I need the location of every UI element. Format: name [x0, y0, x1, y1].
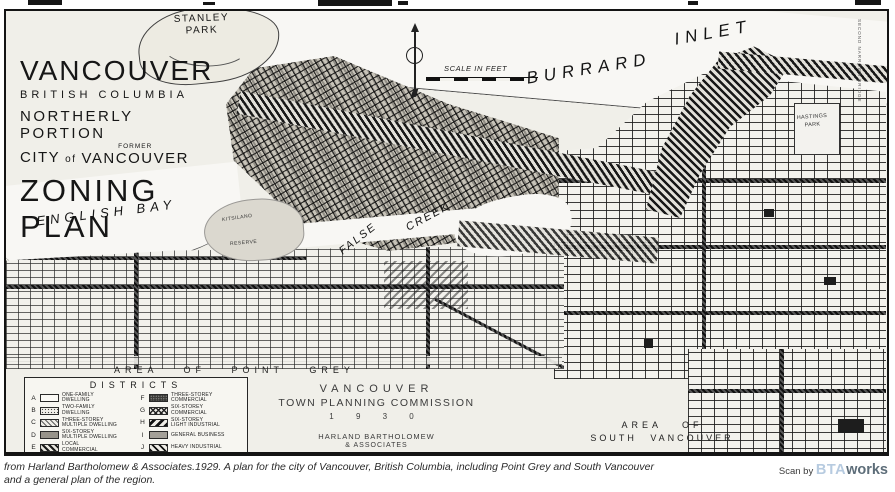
arterial-commercial-strip	[688, 389, 886, 393]
scan-credit: Scan by BTAworks	[779, 462, 888, 478]
legend-row-j: J HEAVY INDUSTRIAL	[139, 442, 242, 454]
legend-label: COMMERCIAL	[171, 398, 212, 403]
legend-key: G	[139, 407, 146, 414]
legend-key: D	[30, 432, 37, 439]
legend-key: H	[139, 419, 146, 426]
arterial-commercial-strip	[554, 311, 886, 315]
scan-artifact	[28, 0, 62, 5]
legend-label: LIGHT INDUSTRIAL	[171, 423, 220, 428]
legend-row-b: B TWO-FAMILYDWELLING	[30, 404, 133, 416]
legend-row-i: I GENERAL BUSINESS	[139, 429, 242, 441]
second-narrows-bridge-label: SECOND NARROWS BRIDGE	[857, 19, 862, 103]
title-word-vancouver: VANCOUVER	[82, 151, 189, 166]
scan-artifact	[688, 1, 698, 5]
arterial-commercial-strip	[6, 285, 564, 289]
legend-key: E	[30, 444, 37, 451]
stanley-park-label-line1: STANLEY	[174, 12, 230, 26]
legend-swatch-general-business	[149, 431, 168, 439]
legend-label: DWELLING	[62, 411, 95, 416]
legend-row-h: H SIX-STOREYLIGHT INDUSTRIAL	[139, 417, 242, 429]
legend-label: MULTIPLE DWELLING	[62, 435, 117, 440]
btaworks-logo-dark: works	[846, 462, 888, 478]
arterial-commercial-strip	[134, 243, 138, 369]
map-black-block	[838, 419, 864, 433]
title-province: BRITISH COLUMBIA	[20, 89, 220, 101]
scanned-map-page: VANCOUVER BRITISH COLUMBIA NORTHERLY POR…	[0, 0, 895, 492]
stanley-park-label-line2: PARK	[174, 24, 230, 38]
legend-swatch-light-industrial	[149, 419, 168, 427]
scale-label: SCALE IN FEET	[444, 64, 507, 73]
scan-artifact	[398, 1, 408, 5]
arterial-commercial-strip	[702, 149, 706, 379]
title-city: VANCOUVER	[20, 55, 220, 87]
legend-row-e: E LOCALCOMMERCIAL	[30, 442, 133, 454]
scan-artifact	[855, 0, 881, 5]
source-caption-line1: from Harland Bartholomew & Associates.19…	[4, 461, 788, 474]
commission-year: 1 9 3 0	[264, 412, 489, 421]
legend-swatch-six-storey-commercial	[149, 407, 168, 415]
legend-key: I	[139, 432, 146, 439]
legend-key: F	[139, 395, 146, 402]
scan-artifact	[318, 0, 392, 6]
legend-row-d: D SIX-STOREYMULTIPLE DWELLING	[30, 429, 133, 441]
scan-credit-prefix: Scan by	[779, 466, 816, 477]
legend-key: C	[30, 419, 37, 426]
hastings-park-label: HASTINGS PARK	[796, 112, 828, 130]
legend-row-a: A ONE-FAMILYDWELLING	[30, 392, 133, 404]
legend-key: A	[30, 395, 37, 402]
area-south-line1: AREA OF	[564, 420, 760, 430]
legend-label: COMMERCIAL	[62, 448, 98, 453]
commission-vancouver: VANCOUVER	[264, 383, 489, 395]
legend-key: B	[30, 407, 37, 414]
mount-pleasant-dark-zone	[384, 261, 468, 309]
btaworks-logo-light: BTA	[816, 462, 846, 478]
legend-swatch-one-family	[40, 394, 59, 402]
legend-row-f: F THREE-STOREYCOMMERCIAL	[139, 392, 242, 404]
scan-artifact	[203, 2, 215, 5]
map-black-block	[644, 339, 653, 348]
title-portion: NORTHERLY PORTION	[20, 108, 220, 142]
legend-row-g: G SIX-STOREYCOMMERCIAL	[139, 404, 242, 416]
map-frame: VANCOUVER BRITISH COLUMBIA NORTHERLY POR…	[4, 9, 889, 456]
legend-key: J	[139, 444, 146, 451]
legend-swatch-three-storey-dwelling	[40, 419, 59, 427]
consultant-name: HARLAND BARTHOLOMEW	[264, 432, 489, 441]
source-caption: from Harland Bartholomew & Associates.19…	[4, 461, 788, 487]
legend-label: COMMERCIAL	[171, 411, 207, 416]
legend-swatch-six-storey-dwelling	[40, 431, 59, 439]
title-former-city: CITYof FORMER VANCOUVER	[20, 144, 220, 166]
source-caption-line2: and a general plan of the region.	[4, 474, 788, 487]
legend-swatch-local-commercial	[40, 444, 59, 452]
arterial-commercial-strip	[780, 349, 784, 456]
legend-row-c: C THREE-STOREYMULTIPLE DWELLING	[30, 417, 133, 429]
map-black-block	[824, 277, 836, 285]
title-word-of: of	[65, 154, 76, 166]
region-south-false-creek-grid	[6, 243, 564, 369]
legend-title: DISTRICTS	[30, 380, 242, 390]
consultant-role: TOWN PLANNING CONSULTANTS	[264, 450, 489, 456]
legend-label: MULTIPLE DWELLING	[62, 423, 117, 428]
area-south-line2: SOUTH VANCOUVER	[564, 433, 760, 443]
commission-block: VANCOUVER TOWN PLANNING COMMISSION 1 9 3…	[264, 383, 489, 456]
area-of-south-vancouver-label: AREA OF SOUTH VANCOUVER	[564, 420, 760, 443]
legend-swatch-three-storey-commercial	[149, 394, 168, 402]
map-black-block	[764, 209, 774, 217]
legend-swatch-heavy-industrial	[149, 444, 168, 452]
legend-label: GENERAL BUSINESS	[171, 433, 225, 438]
area-of-point-grey-label: AREA OF POINT GREY	[114, 365, 355, 375]
north-arrow-icon	[404, 23, 426, 97]
scale-bar	[426, 77, 538, 81]
commission-town-planning: TOWN PLANNING COMMISSION	[264, 397, 489, 409]
title-word-city: CITY	[20, 149, 60, 166]
region-boundary-block-row	[6, 356, 562, 365]
consultant-associates: & ASSOCIATES	[264, 442, 489, 449]
legend-label: DWELLING	[62, 398, 94, 403]
legend-swatch-two-family	[40, 407, 59, 415]
districts-legend: DISTRICTS A ONE-FAMILYDWELLING B TWO-FAM…	[24, 377, 248, 454]
stanley-park-label: STANLEY PARK	[174, 12, 230, 38]
legend-label: HEAVY INDUSTRIAL	[171, 445, 222, 450]
